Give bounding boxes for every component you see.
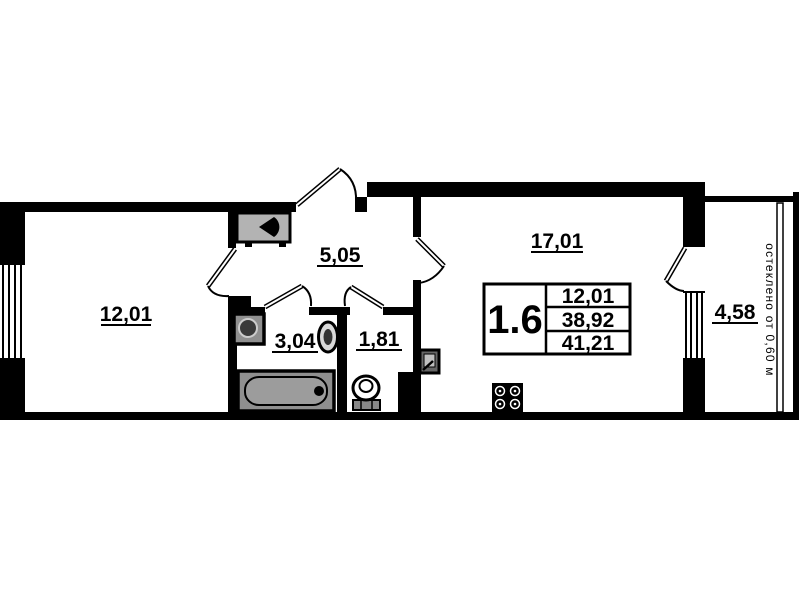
bedroom-window-icon: [0, 263, 25, 360]
room-label-hallway: 5,05: [317, 244, 363, 267]
left-wall-lower: [0, 360, 25, 412]
kitchen-wall-lower: [413, 280, 421, 412]
stove-icon: [492, 383, 523, 412]
svg-text:3,04: 3,04: [275, 330, 316, 353]
info-value-total: 41,21: [562, 332, 615, 355]
unit-info-table: 1.6 12,01 38,92 41,21: [484, 284, 630, 355]
unit-number: 1.6: [487, 298, 543, 342]
right-edge-strip: [793, 192, 799, 420]
wc-door: [345, 287, 383, 307]
room-label-balcony: 4,58: [712, 301, 758, 324]
kitchen-door: [417, 239, 444, 283]
balcony-glazing-note: остеклено от 0,60 м: [763, 243, 777, 376]
bathroom-wc-wall: [337, 315, 347, 412]
bathroom-door: [265, 286, 311, 307]
room-label-bathroom: 3,04: [272, 330, 318, 353]
wc-top-wall-right: [383, 307, 413, 315]
bedroom-door-arc: [208, 286, 229, 296]
right-wall-lower: [683, 360, 705, 412]
room-label-kitchen-living: 17,01: [531, 230, 584, 253]
bedroom-wall-corner: [228, 296, 251, 315]
wc-door-arc: [345, 287, 351, 306]
bathtub-icon: [238, 371, 334, 411]
bathroom-top-wall-mid: [309, 307, 350, 315]
room-label-bedroom: 12,01: [100, 303, 153, 326]
entrance-door: [297, 169, 356, 205]
bathroom-sink-icon: [319, 322, 338, 352]
floor-plan-drawing: 1.6 12,01 38,92 41,21 12,01 5,05 3,04 1,…: [0, 0, 799, 600]
kitchen-sink-icon: [420, 350, 439, 373]
room-label-wc: 1,81: [356, 328, 402, 351]
svg-text:1,81: 1,81: [359, 328, 400, 351]
top-wall-left: [0, 202, 296, 212]
bathroom-door-arc: [302, 286, 311, 306]
info-value-area: 38,92: [562, 309, 615, 332]
balcony-door: [666, 248, 685, 291]
right-wall-upper: [683, 182, 705, 247]
toilet-icon: [353, 376, 380, 410]
wc-duct-block: [398, 372, 413, 412]
top-wall-main: [367, 182, 683, 197]
washing-machine-icon: [234, 314, 264, 344]
left-wall-upper: [0, 202, 25, 263]
svg-text:4,58: 4,58: [715, 301, 756, 324]
svg-text:5,05: 5,05: [320, 244, 361, 267]
entrance-door-arc: [340, 169, 356, 201]
svg-text:17,01: 17,01: [531, 230, 584, 253]
vent-shaft-icon: [237, 213, 290, 247]
bedroom-wall-upper: [228, 212, 236, 248]
balcony-top-wall: [703, 196, 793, 202]
info-value-living: 12,01: [562, 285, 615, 308]
kitchen-window-icon: [683, 291, 705, 360]
bottom-wall: [0, 412, 799, 420]
balcony-door-arc: [666, 281, 684, 291]
kitchen-door-arc: [419, 266, 444, 283]
floor-plan-image: 1.6 12,01 38,92 41,21 12,01 5,05 3,04 1,…: [0, 0, 799, 600]
bedroom-door: [208, 249, 235, 296]
kitchen-wall-upper: [413, 196, 421, 237]
svg-text:12,01: 12,01: [100, 303, 153, 326]
